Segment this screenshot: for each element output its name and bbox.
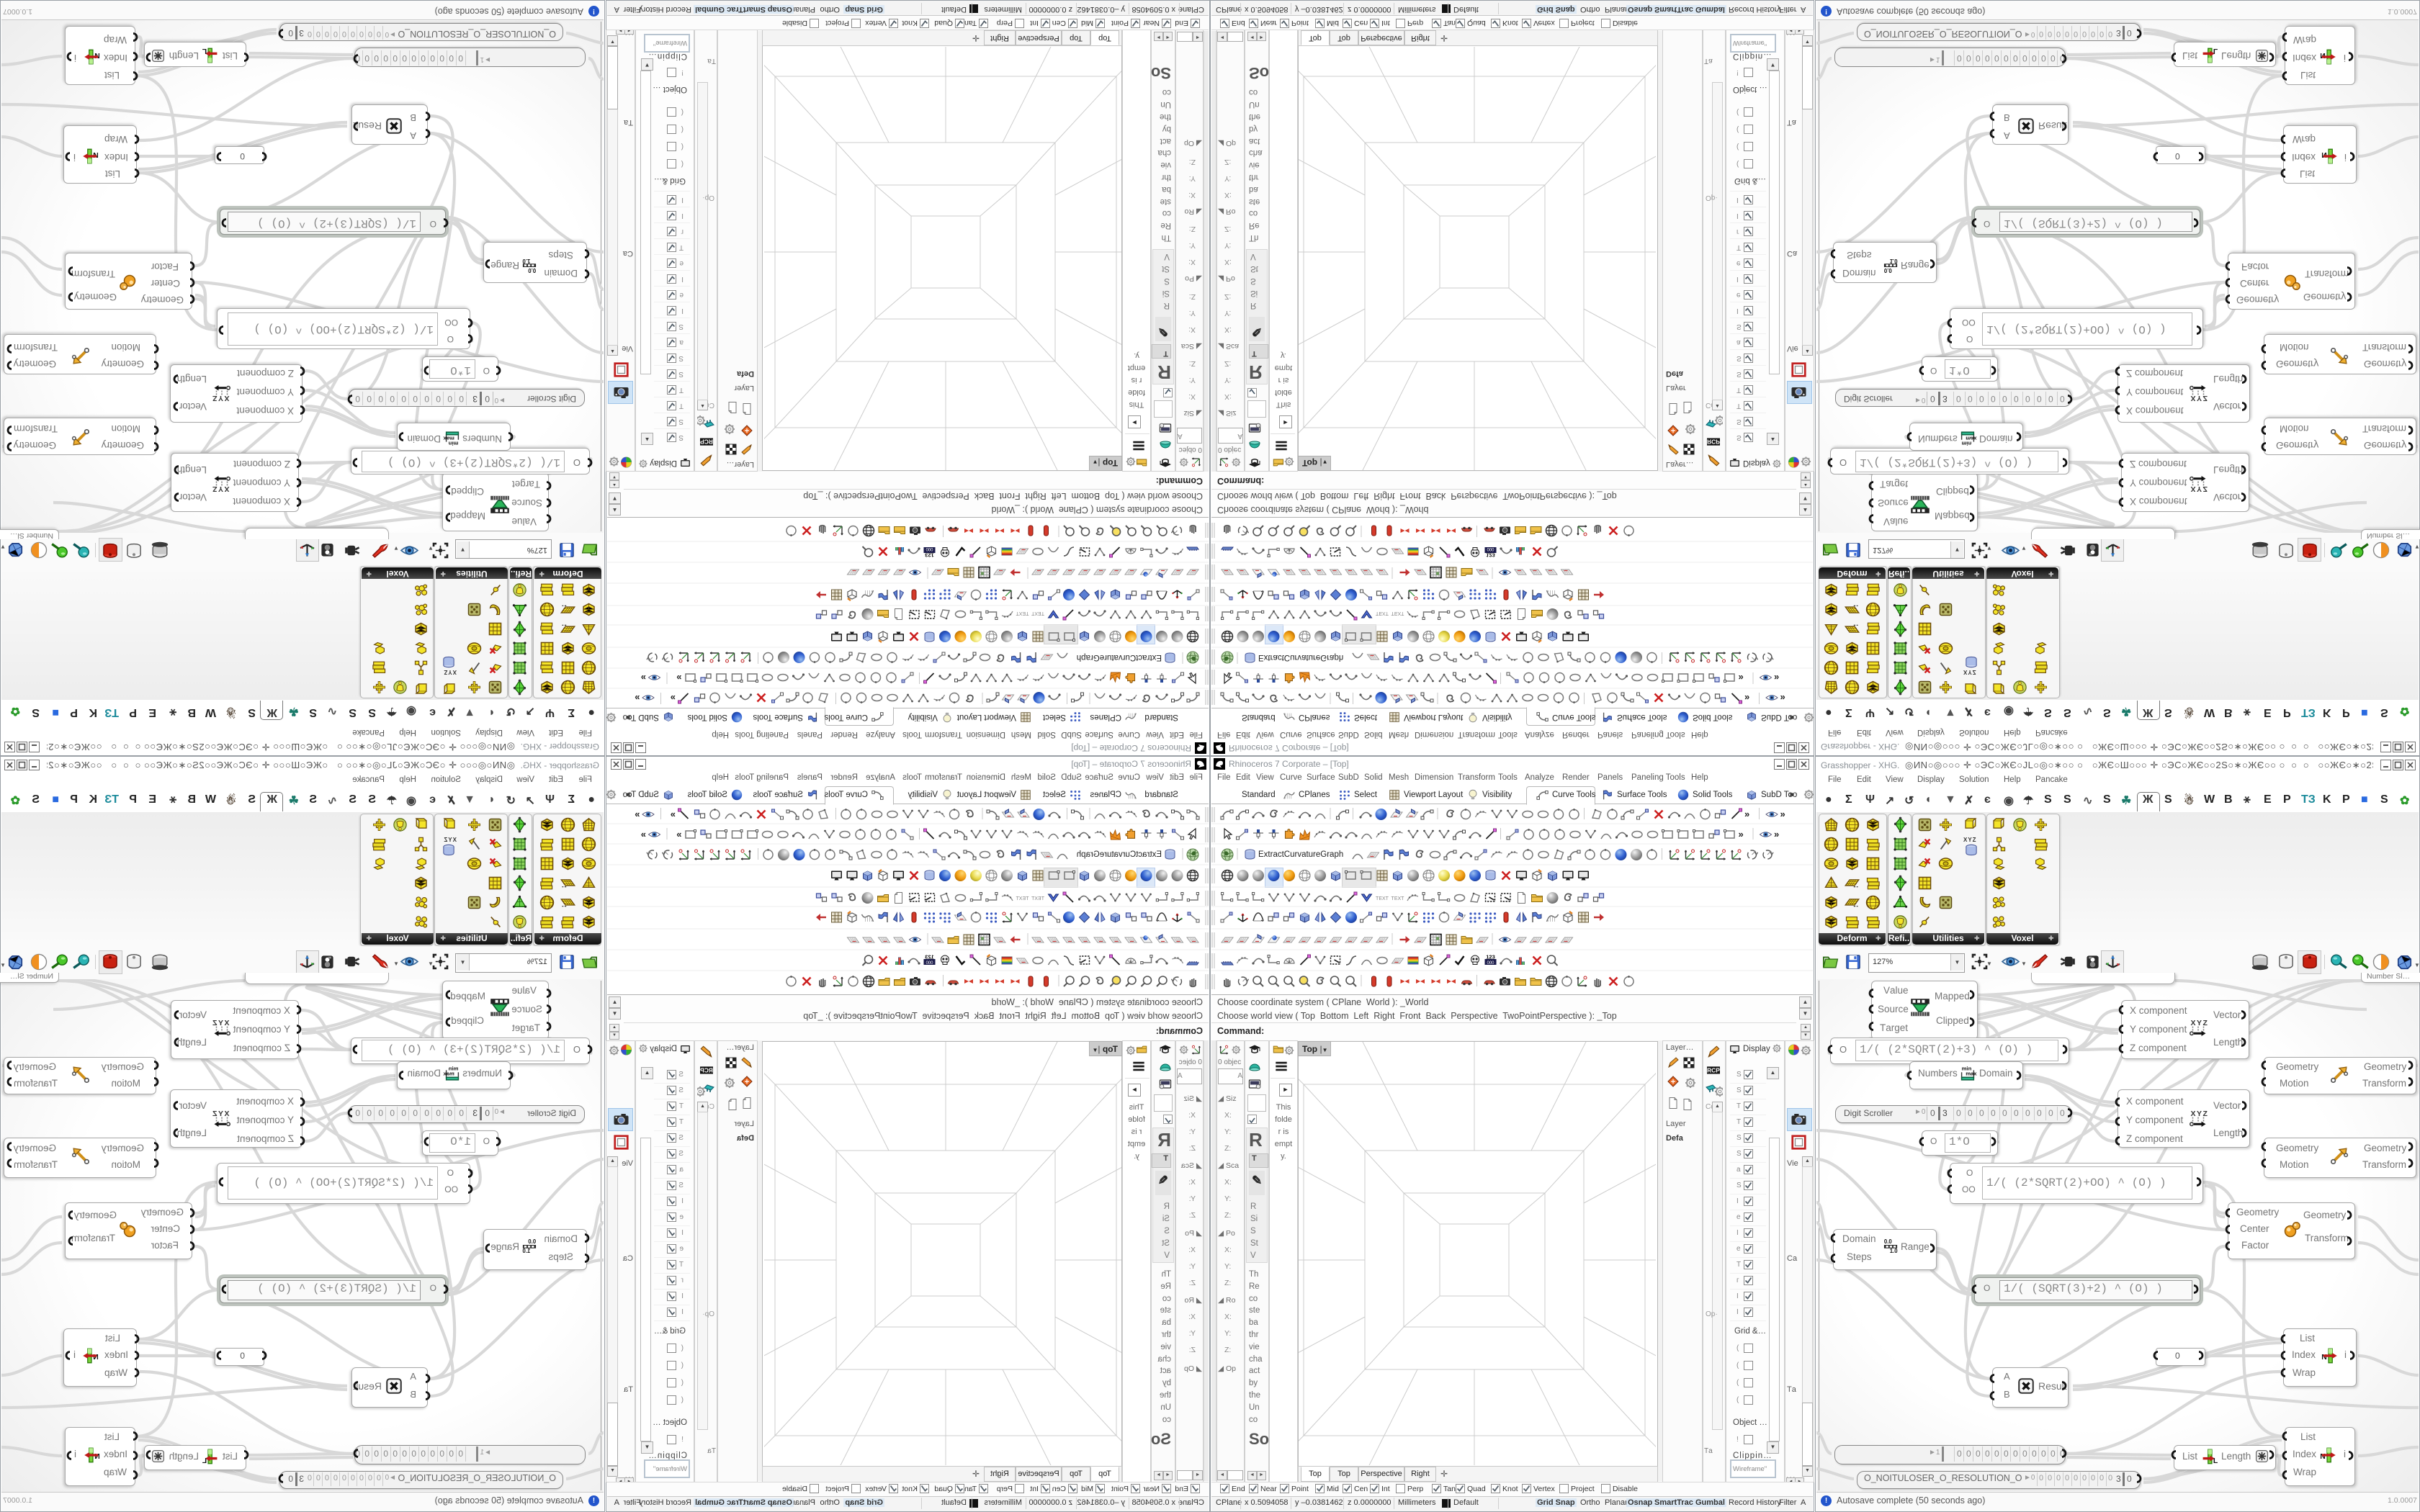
svg-text:ExtractCurvatureGraph: ExtractCurvatureGraph xyxy=(1258,653,1343,662)
svg-text:ExtractCurvatureGraph: ExtractCurvatureGraph xyxy=(1077,850,1162,859)
svg-text:»: » xyxy=(1744,693,1749,703)
svg-text:»: » xyxy=(671,693,676,703)
svg-text:»: » xyxy=(635,809,640,819)
svg-text:»: » xyxy=(1739,829,1744,840)
svg-text:»: » xyxy=(641,672,646,683)
svg-text:»: » xyxy=(641,829,646,840)
svg-text:»: » xyxy=(1774,829,1779,840)
svg-text:ExtractCurvatureGraph: ExtractCurvatureGraph xyxy=(1258,850,1343,859)
svg-text:»: » xyxy=(676,672,681,683)
svg-text:»: » xyxy=(1774,672,1779,683)
svg-text:»: » xyxy=(671,809,676,819)
svg-text:»: » xyxy=(1780,693,1785,703)
svg-text:»: » xyxy=(1780,809,1785,819)
svg-text:»: » xyxy=(1739,672,1744,683)
svg-text:»: » xyxy=(1744,809,1749,819)
svg-text:ExtractCurvatureGraph: ExtractCurvatureGraph xyxy=(1077,653,1162,662)
svg-text:»: » xyxy=(635,693,640,703)
svg-text:»: » xyxy=(676,829,681,840)
